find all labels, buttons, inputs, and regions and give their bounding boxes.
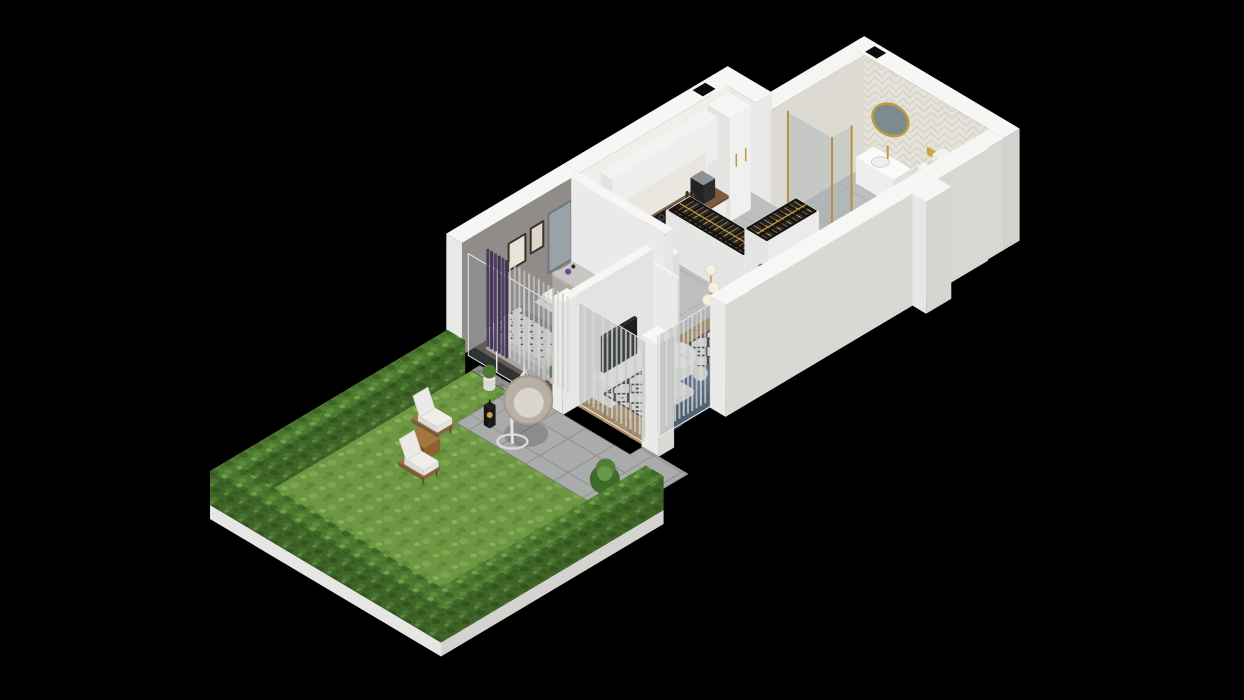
garden-shrub-3 — [597, 466, 612, 481]
bathroom-se-step — [913, 179, 952, 314]
desk-accessory — [571, 265, 575, 269]
floor-plan-svg — [0, 0, 1244, 700]
bedroom-wall-mirror — [549, 200, 572, 273]
desk-vase — [565, 269, 571, 275]
lantern-glow — [487, 412, 493, 418]
floor-plan-render — [0, 0, 1244, 700]
bedroom-window-post — [552, 288, 577, 415]
hanging-chair-cushion — [514, 388, 544, 418]
bathroom-sink-basin — [871, 157, 889, 168]
garden-pot-plant — [482, 365, 496, 379]
